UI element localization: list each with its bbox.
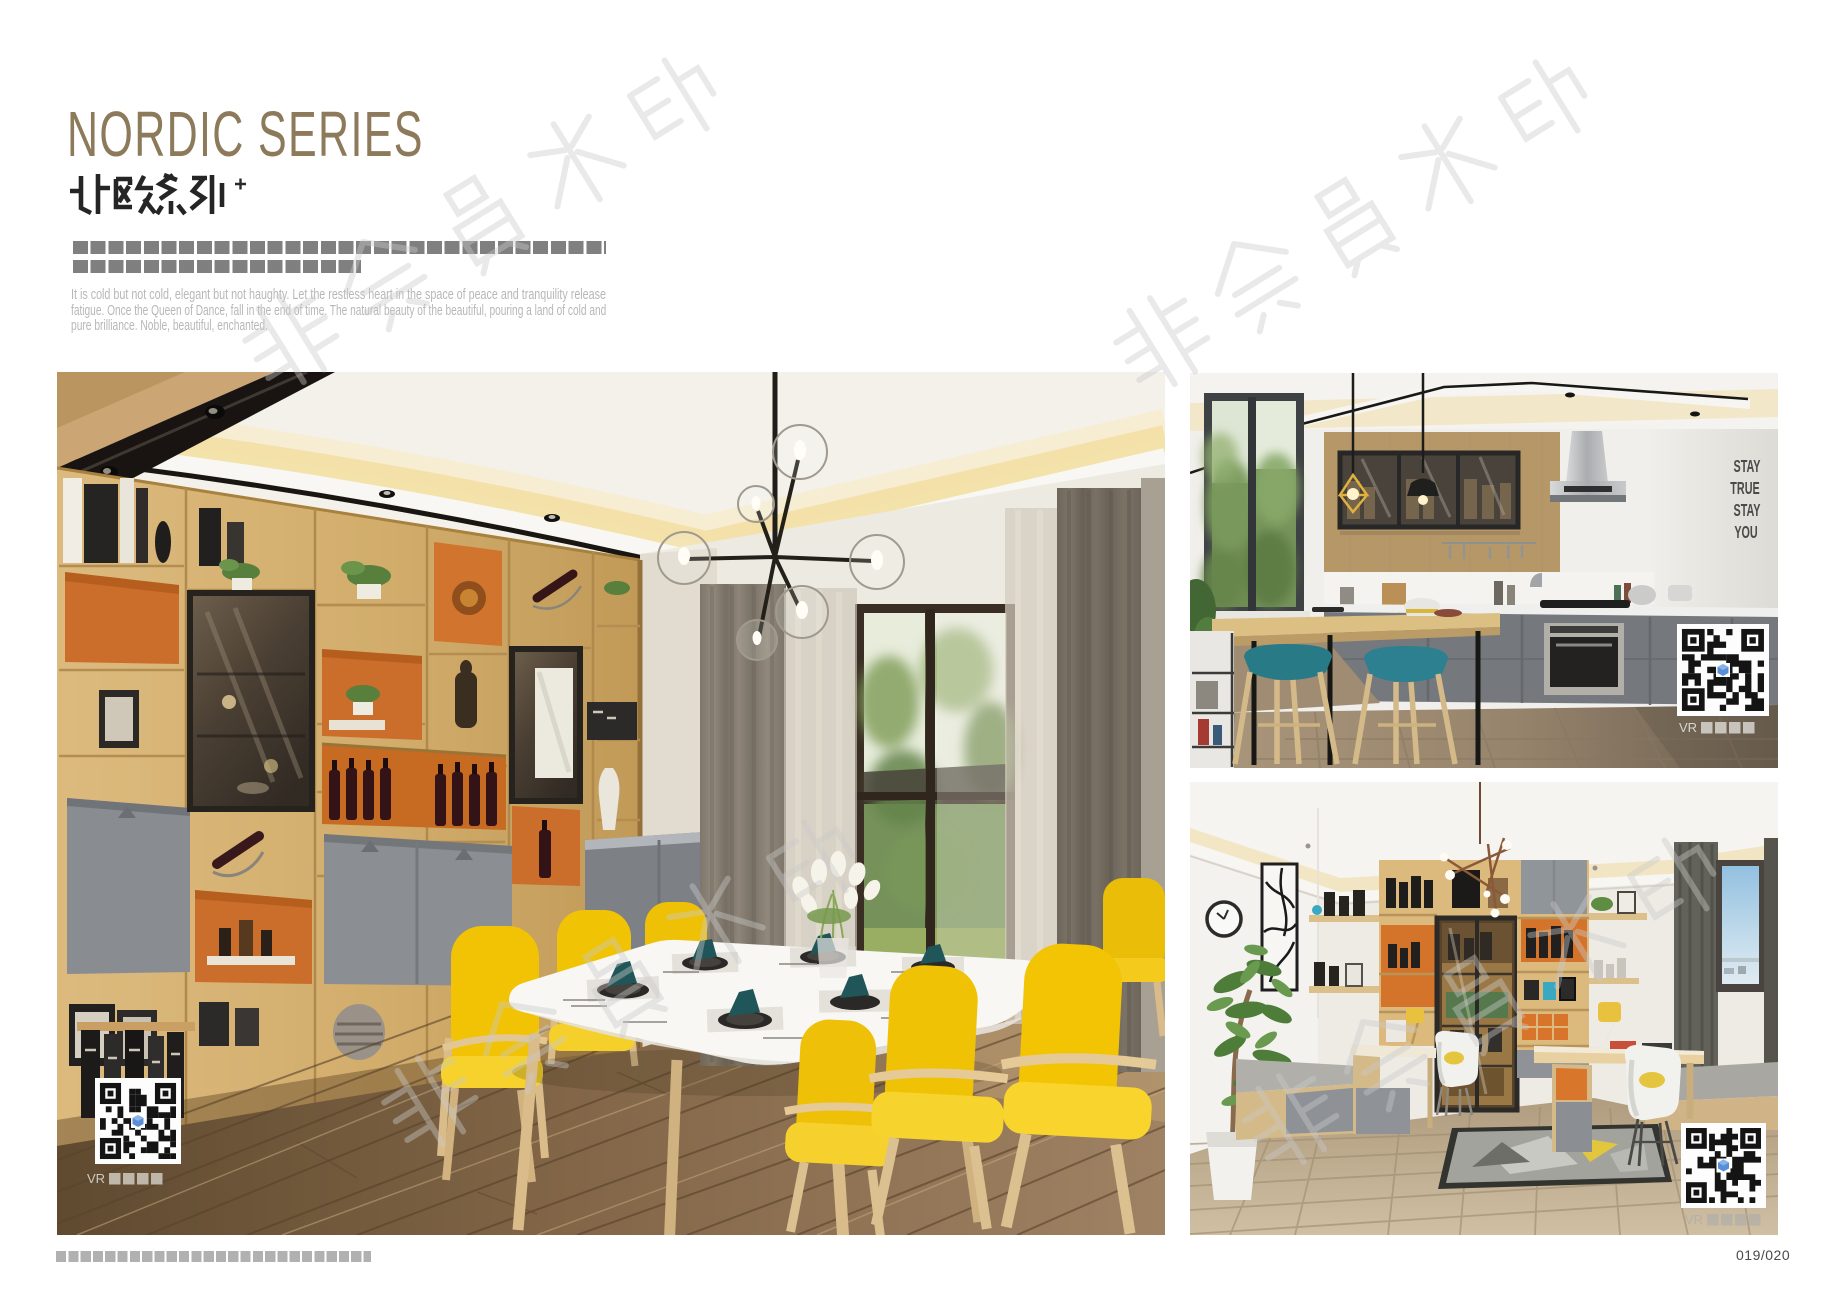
svg-text:STAY: STAY bbox=[1734, 457, 1761, 476]
svg-text:VR: VR bbox=[1685, 1212, 1703, 1227]
svg-text:VR: VR bbox=[87, 1171, 105, 1186]
svg-text:STAY: STAY bbox=[1734, 501, 1761, 520]
svg-text:VR: VR bbox=[1679, 720, 1697, 735]
svg-text:TRUE: TRUE bbox=[1730, 479, 1759, 498]
svg-text:YOU: YOU bbox=[1734, 523, 1757, 542]
